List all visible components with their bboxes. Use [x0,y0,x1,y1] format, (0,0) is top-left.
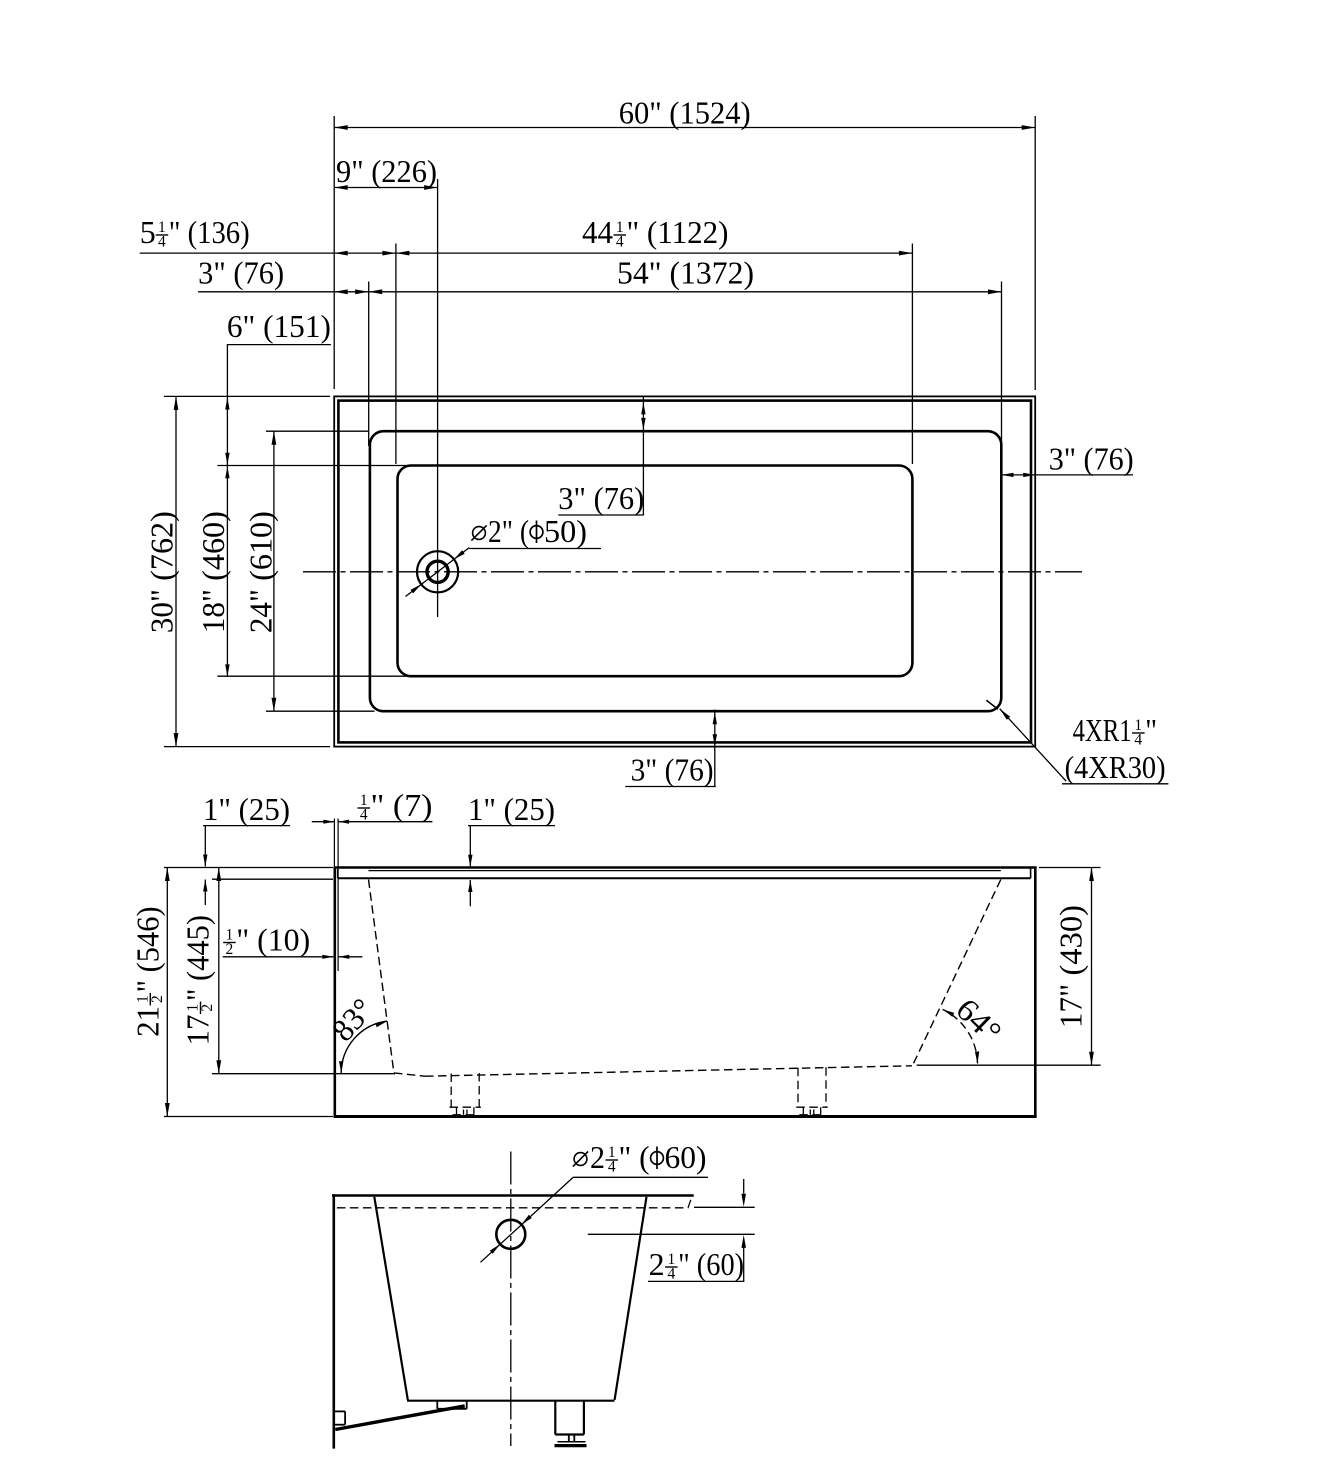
svg-text:(4XR30): (4XR30) [1065,749,1166,785]
svg-text:2: 2 [590,1139,605,1175]
svg-text:" (445): " (445) [180,915,216,1001]
svg-text:3" (76): 3" (76) [198,255,284,291]
svg-text:2: 2 [226,941,234,958]
svg-text:4: 4 [158,234,166,251]
svg-text:3" (76): 3" (76) [631,752,714,788]
svg-text:4XR1: 4XR1 [1073,712,1132,748]
svg-text:6" (151): 6" (151) [227,308,331,344]
svg-text:21: 21 [129,1006,165,1037]
svg-text:4: 4 [668,1266,676,1283]
svg-text:50): 50) [544,513,587,549]
svg-text:" (546): " (546) [129,906,165,992]
svg-text:2: 2 [149,995,166,1003]
svg-text:4: 4 [616,234,624,251]
svg-text:18: 18 [195,602,231,633]
svg-text:9" (226): 9" (226) [336,153,437,189]
svg-text:" (136): " (136) [169,214,250,250]
svg-text:3" (76): 3" (76) [558,480,644,516]
svg-text:24: 24 [243,602,279,633]
svg-text:44: 44 [582,214,613,250]
svg-text:2: 2 [199,1004,216,1012]
svg-text:60): 60) [665,1139,707,1175]
svg-text:" (762): " (762) [143,511,179,602]
svg-text:4: 4 [360,807,368,824]
svg-text:" (7): " (7) [371,787,433,823]
svg-text:54" (1372): 54" (1372) [617,255,754,291]
svg-text:4: 4 [608,1159,616,1176]
svg-text:" (60): " (60) [678,1246,744,1282]
svg-text:" (610): " (610) [243,511,279,602]
svg-text:" (460): " (460) [195,511,231,602]
svg-text:4: 4 [1134,732,1142,749]
svg-text:30: 30 [143,602,179,633]
svg-text:1" (25): 1" (25) [203,791,290,827]
svg-text:": " [1145,712,1157,748]
svg-text:" (: " ( [619,1139,650,1175]
svg-text:3" (76): 3" (76) [1049,441,1134,477]
svg-text:2" (: 2" ( [488,513,529,549]
svg-text:1" (25): 1" (25) [468,791,555,827]
svg-text:2: 2 [649,1246,665,1282]
svg-text:17: 17 [1053,997,1089,1028]
svg-text:" (430): " (430) [1053,905,1089,997]
svg-text:60" (1524): 60" (1524) [619,94,751,130]
svg-text:" (10): " (10) [236,922,310,958]
svg-text:17: 17 [180,1015,216,1046]
svg-text:5: 5 [140,214,156,250]
svg-text:" (1122): " (1122) [627,214,729,250]
